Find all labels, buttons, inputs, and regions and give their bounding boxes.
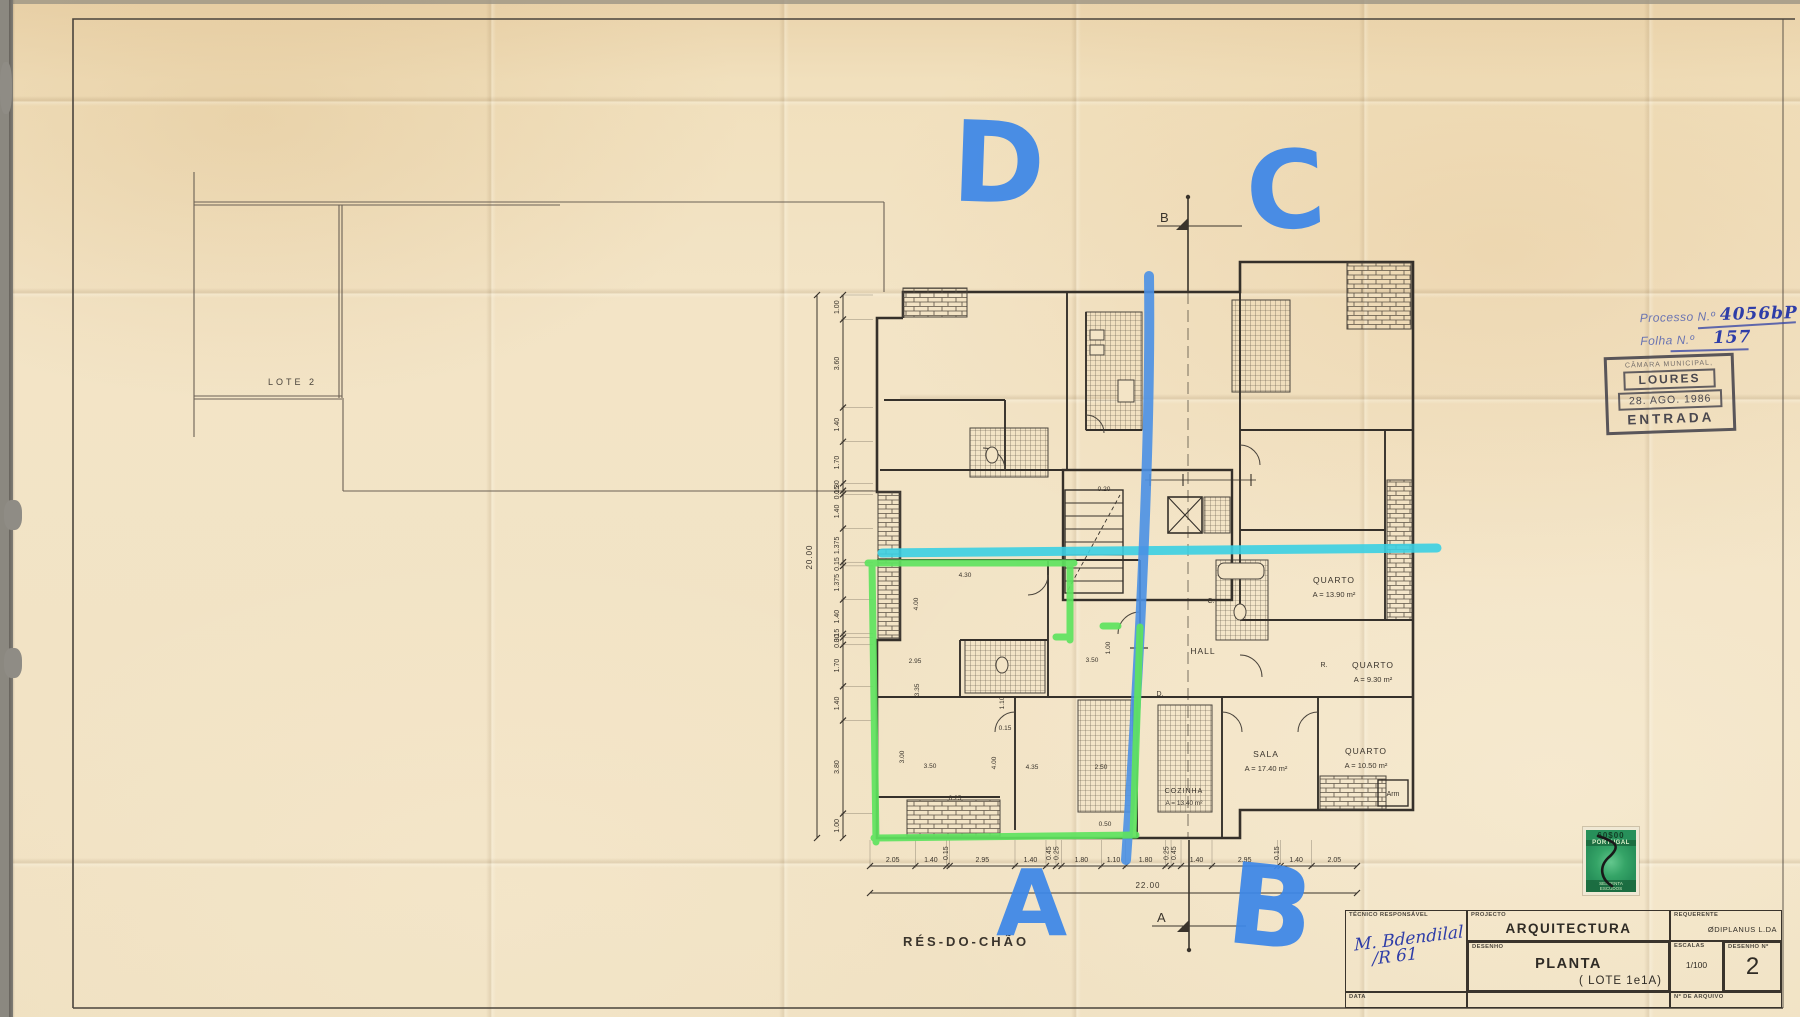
escalas-value: 1/100 bbox=[1671, 960, 1722, 970]
dimension-mark: 1.70 bbox=[834, 659, 841, 673]
dimension-mark: 1.375 bbox=[834, 574, 841, 592]
desenho-label: DESENHO bbox=[1472, 944, 1503, 950]
cyan-marker-line bbox=[882, 548, 1437, 553]
room-label: QUARTO bbox=[1313, 575, 1355, 585]
dimension-mark: 0.15 bbox=[999, 725, 1012, 732]
dimension-mark: 1.80 bbox=[1075, 857, 1089, 864]
projecto-value: ARQUITECTURA bbox=[1468, 921, 1669, 936]
desenho-numero-value: 2 bbox=[1725, 953, 1780, 981]
room-label: QUARTO bbox=[1345, 746, 1387, 756]
dimension-mark: 1.10 bbox=[1107, 857, 1121, 864]
dimension-mark: 4.30 bbox=[959, 572, 972, 579]
dimension-mark: 0.45 bbox=[1171, 846, 1178, 860]
marker-letter-c: C bbox=[1243, 136, 1328, 248]
pen-cancel-stroke bbox=[1586, 830, 1636, 892]
dimension-mark: 2.50 bbox=[1095, 764, 1108, 771]
dimension-mark: 0.50 bbox=[1099, 821, 1112, 828]
door-mark: C. bbox=[1208, 598, 1215, 605]
dimension-mark: 3.80 bbox=[834, 760, 841, 774]
cell-escalas: ESCALAS 1/100 bbox=[1670, 941, 1723, 992]
dimension-mark: 1.40 bbox=[834, 697, 841, 711]
marker-overlays bbox=[868, 276, 1437, 860]
revenue-stamp: 60$00 PORTUGAL SESSENTAESCUDOS bbox=[1583, 827, 1639, 895]
dimension-mark: 1.375 bbox=[834, 537, 841, 555]
dimension-mark: 1.40 bbox=[834, 610, 841, 624]
door-mark: R. bbox=[1321, 662, 1328, 669]
room-area: A = 9.30 m² bbox=[1354, 675, 1393, 684]
cell-tecnico: TÉCNICO RESPONSÁVEL M. Bdendilal /R 61 bbox=[1345, 910, 1467, 992]
dimension-mark: 2.05 bbox=[1327, 857, 1341, 864]
dimension-mark: 0.30 bbox=[834, 634, 841, 648]
dimension-mark: 4.00 bbox=[913, 597, 920, 610]
dimension-mark: 3.60 bbox=[834, 357, 841, 371]
room-label: COZINHA bbox=[1165, 788, 1204, 795]
stamp-line-entrada: ENTRADA bbox=[1611, 409, 1731, 428]
dimension-mark: 0.25 bbox=[949, 795, 962, 802]
room-label: HALL bbox=[1190, 646, 1215, 656]
site-boundary-lines bbox=[194, 172, 884, 491]
dimension-mark: 0.20 bbox=[1098, 486, 1111, 493]
stamp-line-loures: LOURES bbox=[1623, 368, 1716, 390]
stamp-line-date: 28. AGO. 1986 bbox=[1618, 389, 1723, 411]
room-label: QUARTO bbox=[1352, 660, 1394, 670]
desenho-value: PLANTA bbox=[1469, 956, 1668, 972]
cell-middle-bottom bbox=[1467, 992, 1670, 1008]
dimension-mark: 3.50 bbox=[1086, 657, 1099, 664]
escalas-label: ESCALAS bbox=[1674, 943, 1705, 949]
section-marker-a: A bbox=[1157, 910, 1166, 925]
dimension-mark: 1.00 bbox=[834, 300, 841, 314]
desenho-numero-label: DESENHO Nº bbox=[1728, 944, 1769, 950]
marker-letter-b: B bbox=[1222, 848, 1319, 968]
cell-projecto: PROJECTO ARQUITECTURA bbox=[1467, 910, 1670, 941]
title-block: TÉCNICO RESPONSÁVEL M. Bdendilal /R 61 P… bbox=[1345, 910, 1782, 1008]
requerente-value: ØDIPLANUS L.DA bbox=[1671, 925, 1777, 934]
projecto-label: PROJECTO bbox=[1471, 912, 1506, 918]
dimension-mark: 1.40 bbox=[834, 418, 841, 432]
dimension-mark: 3.00 bbox=[899, 750, 906, 763]
requerente-label: REQUERENTE bbox=[1674, 912, 1718, 918]
dimension-mark: 1.10 bbox=[999, 696, 1006, 709]
room-label: SALA bbox=[1253, 749, 1279, 759]
folha-value: 157 bbox=[1713, 327, 1752, 348]
cell-arquivo: Nº DE ARQUIVO bbox=[1670, 992, 1782, 1008]
processo-block: Processo N.º 4056bP Folha N.º 157 bbox=[1639, 303, 1800, 353]
dimension-chain-left: 1.003.601.401.700.300.151.401.3750.151.3… bbox=[834, 292, 873, 841]
marker-letter-a: A bbox=[996, 858, 1067, 950]
dimension-mark: 3.35 bbox=[914, 683, 921, 696]
dimension-mark: 1.00 bbox=[834, 819, 841, 833]
arquivo-label: Nº DE ARQUIVO bbox=[1674, 994, 1724, 1000]
dimension-mark: 4.00 bbox=[991, 756, 998, 769]
tecnico-label: TÉCNICO RESPONSÁVEL bbox=[1349, 912, 1428, 918]
municipal-entry-stamp: CÂMARA MUNICIPAL, LOURES 28. AGO. 1986 E… bbox=[1604, 353, 1737, 435]
dimension-mark: 1.40 bbox=[1190, 857, 1204, 864]
room-area: A = 13.40 m² bbox=[1165, 800, 1203, 807]
marker-letter-d: D bbox=[950, 106, 1047, 221]
cell-desenho: DESENHO PLANTA ( LOTE 1e1A) bbox=[1467, 941, 1670, 992]
lote-2-label: LOTE 2 bbox=[268, 377, 317, 387]
technician-signature: M. Bdendilal /R 61 bbox=[1354, 924, 1464, 970]
dimension-mark: 2.05 bbox=[886, 857, 900, 864]
dimension-mark: 2.95 bbox=[909, 658, 922, 665]
room-area: A = 17.40 m² bbox=[1245, 764, 1288, 773]
room-label: Arm bbox=[1387, 791, 1400, 798]
room-area: A = 10.50 m² bbox=[1345, 761, 1388, 770]
scanned-blueprint-sheet: B A QUARTO A = 13.90 m² QUARTO A = 9.30 … bbox=[0, 0, 1800, 1017]
folha-label: Folha N.º bbox=[1640, 333, 1695, 348]
cell-data: DATA bbox=[1345, 992, 1467, 1008]
total-width-label: 22.00 bbox=[1135, 881, 1160, 890]
dimension-mark: 1.40 bbox=[924, 857, 938, 864]
dimension-mark: 4.35 bbox=[1026, 764, 1039, 771]
dimension-mark: 2.95 bbox=[976, 857, 990, 864]
dimension-mark: 3.50 bbox=[924, 763, 937, 770]
total-height-label: 20.00 bbox=[805, 544, 814, 569]
cell-desenho-numero: DESENHO Nº 2 bbox=[1723, 941, 1782, 992]
floor-plan-drawing: B A QUARTO A = 13.90 m² QUARTO A = 9.30 … bbox=[0, 0, 1800, 1017]
cell-requerente: REQUERENTE ØDIPLANUS L.DA bbox=[1670, 910, 1782, 941]
data-label: DATA bbox=[1349, 994, 1366, 1000]
section-marker-b: B bbox=[1160, 210, 1169, 225]
door-mark: D. bbox=[1157, 691, 1164, 698]
dimension-mark: 1.40 bbox=[834, 505, 841, 519]
dimension-mark: 1.70 bbox=[834, 456, 841, 470]
dimension-mark: 0.25 bbox=[1163, 846, 1170, 860]
processo-label: Processo N.º bbox=[1640, 309, 1716, 325]
desenho-value2: ( LOTE 1e1A) bbox=[1579, 975, 1662, 987]
dimension-mark: 1.80 bbox=[1139, 857, 1153, 864]
room-area: A = 13.90 m² bbox=[1313, 590, 1356, 599]
dimension-mark: 1.00 bbox=[1105, 641, 1112, 654]
